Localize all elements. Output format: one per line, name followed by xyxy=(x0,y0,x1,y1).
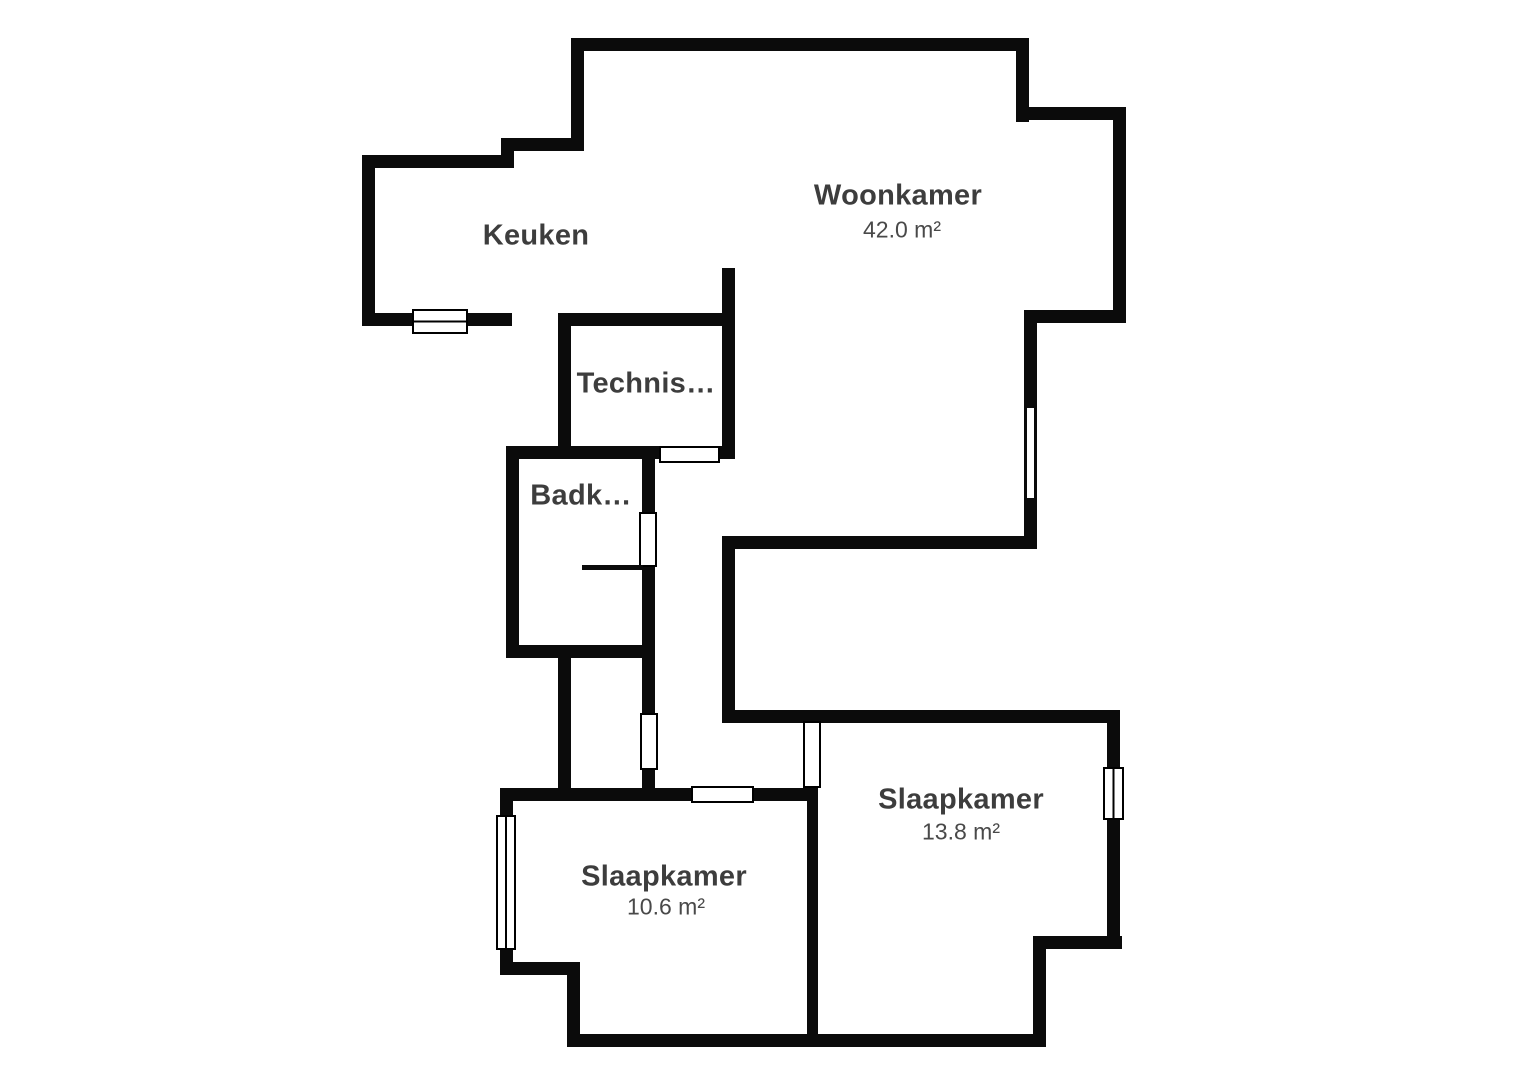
wall-segment xyxy=(1113,107,1126,323)
hal-door xyxy=(641,714,657,769)
wall-segment xyxy=(722,268,735,459)
wall-segment xyxy=(567,1034,1046,1047)
wall-segment xyxy=(571,38,1029,51)
wall-segment xyxy=(558,645,571,790)
wall-segment xyxy=(558,313,571,459)
wall-segment xyxy=(571,38,584,151)
technische-ruimte-door xyxy=(660,447,719,462)
wall-segment xyxy=(1024,310,1126,323)
wall-segment xyxy=(362,155,375,326)
wall-segment xyxy=(506,446,519,658)
wall-segment xyxy=(362,155,513,168)
badkamer-partition-line xyxy=(582,565,643,570)
wall-segment xyxy=(1016,107,1126,120)
slaapkamer-rechts-door xyxy=(804,722,820,787)
badkamer-door xyxy=(640,513,656,566)
wall-segment xyxy=(1016,38,1029,122)
slaapkamer-links-door xyxy=(692,787,753,802)
woonkamer-window xyxy=(1027,408,1034,498)
wall-segment xyxy=(500,788,818,801)
wall-segment xyxy=(1107,710,1120,949)
wall-segment xyxy=(558,313,733,326)
wall-segment xyxy=(506,645,648,658)
floorplan: KeukenWoonkamer42.0 m²Technis…Badk…Slaap… xyxy=(0,0,1527,1080)
wall-segment xyxy=(722,710,1120,723)
wall-segment xyxy=(1033,936,1122,949)
wall-segment xyxy=(1033,936,1046,1047)
wall-segment xyxy=(722,536,735,723)
wall-segment xyxy=(722,536,1037,549)
floorplan-drawing xyxy=(0,0,1527,1080)
